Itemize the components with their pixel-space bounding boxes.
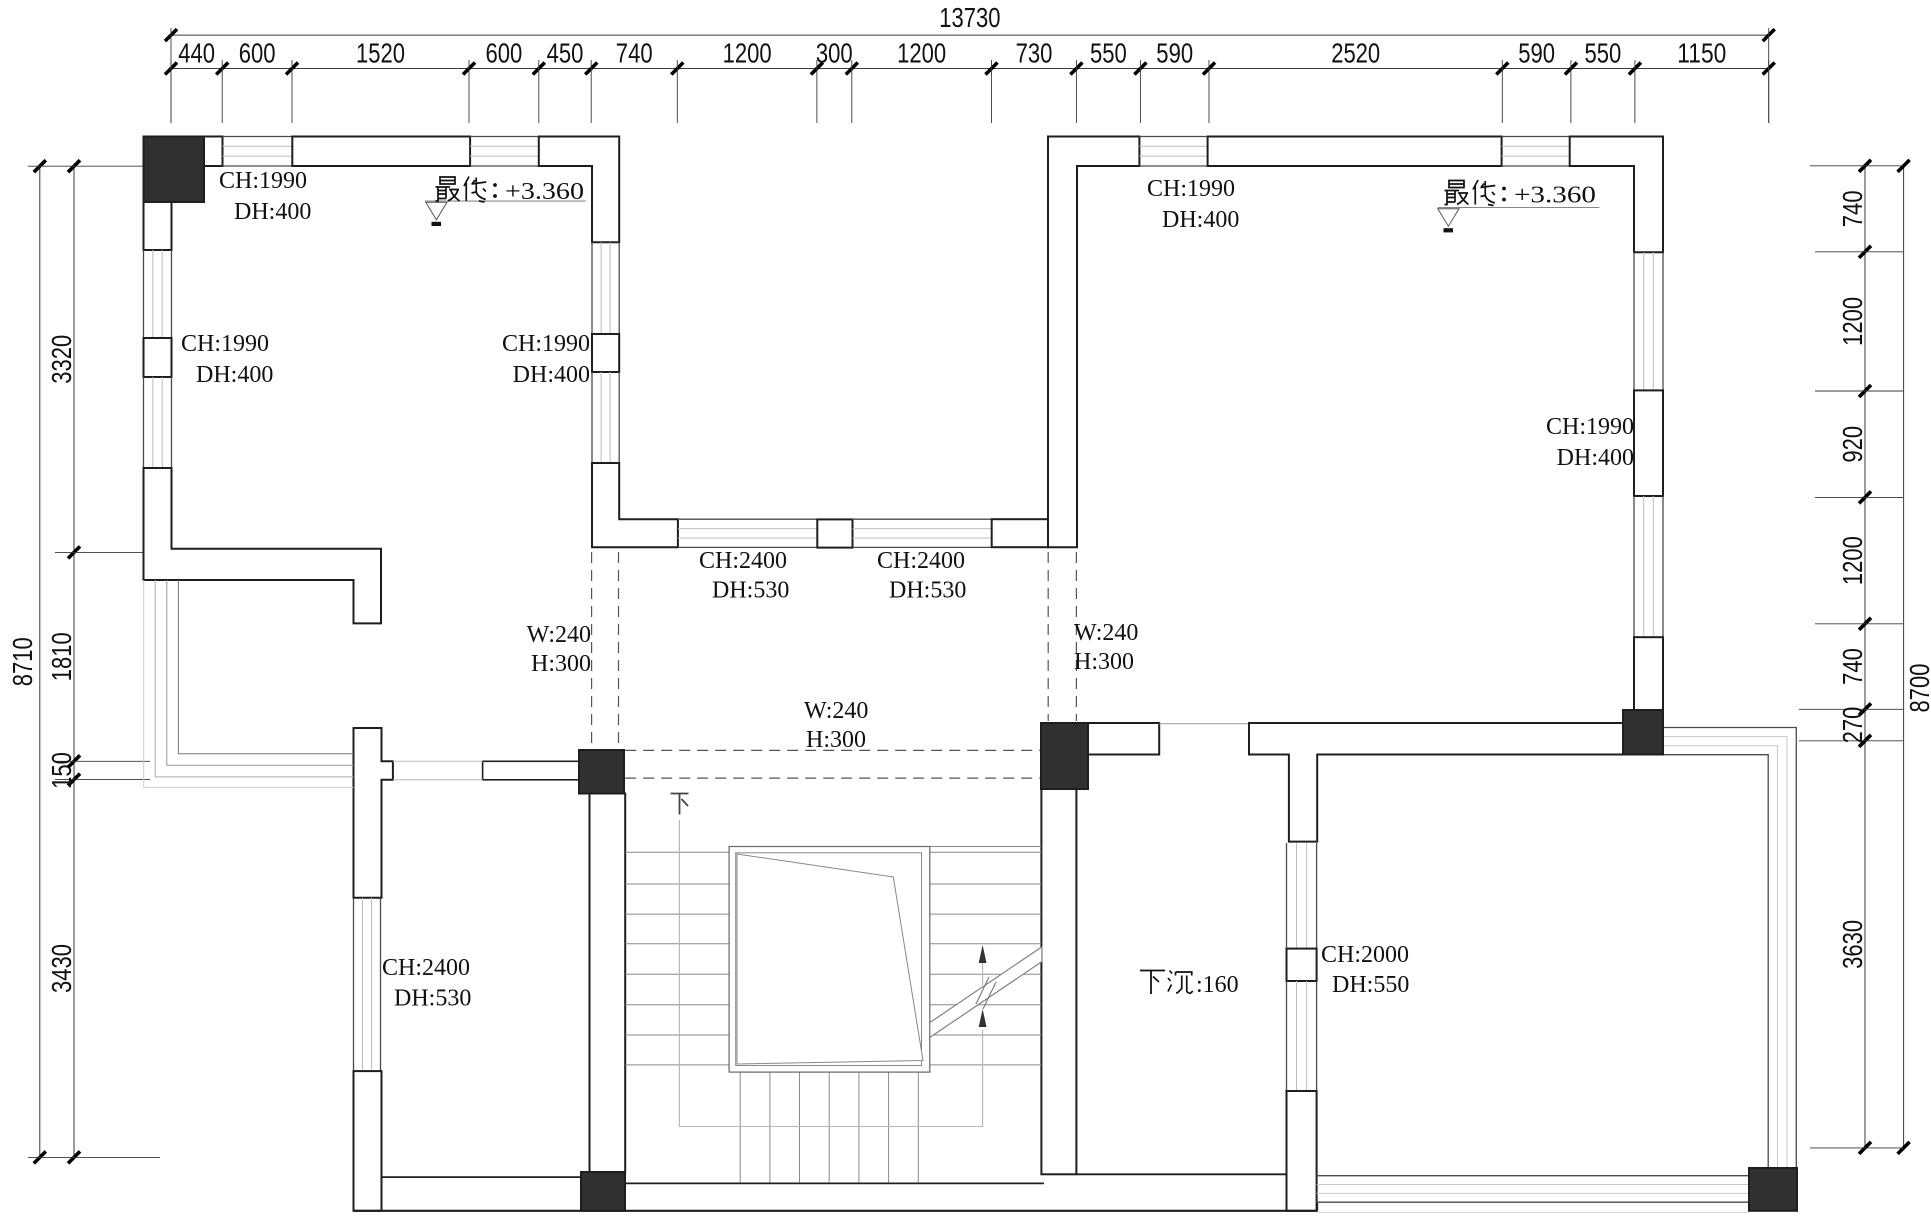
svg-text:600: 600 [486,38,523,69]
svg-text:DH:400: DH:400 [1162,207,1239,233]
svg-text:H:300: H:300 [806,727,866,753]
svg-text:730: 730 [1016,38,1053,69]
svg-text:1200: 1200 [723,38,772,69]
svg-text:H:300: H:300 [531,651,591,677]
svg-text:CH:1990: CH:1990 [1147,176,1235,202]
svg-text:W:240: W:240 [804,698,868,724]
svg-text:1520: 1520 [356,38,405,69]
svg-text:920: 920 [1837,426,1868,463]
svg-text:1810: 1810 [46,632,77,681]
svg-text:1150: 1150 [1677,38,1726,69]
svg-text:3630: 3630 [1837,920,1868,969]
svg-text:1200: 1200 [897,38,946,69]
svg-text:1200: 1200 [1837,536,1868,585]
svg-text:3430: 3430 [46,944,77,993]
svg-text:DH:400: DH:400 [196,362,273,388]
svg-text:CH:1990: CH:1990 [1546,414,1634,440]
svg-text:DH:400: DH:400 [234,199,311,225]
svg-text:150: 150 [46,752,77,789]
svg-text:DH:550: DH:550 [1332,972,1409,998]
svg-text:CH:2400: CH:2400 [699,548,787,574]
svg-text:W:240: W:240 [527,622,591,648]
svg-text:DH:400: DH:400 [1557,445,1634,471]
svg-text:+3.360: +3.360 [505,179,584,205]
svg-text:450: 450 [547,38,584,69]
svg-text:550: 550 [1090,38,1127,69]
svg-text:740: 740 [1837,190,1868,227]
svg-text:DH:530: DH:530 [889,578,966,604]
svg-text:440: 440 [178,38,215,69]
svg-text:13730: 13730 [939,2,1000,33]
svg-text:2520: 2520 [1331,38,1380,69]
svg-text:CH:1990: CH:1990 [219,168,307,194]
svg-text:590: 590 [1518,38,1555,69]
svg-text:H:300: H:300 [1074,649,1134,675]
svg-text:CH:2000: CH:2000 [1321,942,1409,968]
svg-text:8710: 8710 [7,637,38,686]
svg-text:270: 270 [1837,707,1868,744]
svg-text:DH:400: DH:400 [513,362,590,388]
svg-text::160: :160 [1196,972,1239,998]
svg-text:CH:2400: CH:2400 [877,548,965,574]
svg-text:740: 740 [1837,648,1868,685]
svg-text:+3.360: +3.360 [1514,183,1596,209]
svg-text:590: 590 [1156,38,1193,69]
svg-text:CH:1990: CH:1990 [502,331,590,357]
svg-text:740: 740 [616,38,653,69]
svg-text:1200: 1200 [1837,297,1868,346]
svg-text:550: 550 [1585,38,1622,69]
svg-text:W:240: W:240 [1074,620,1138,646]
svg-text:300: 300 [816,38,853,69]
svg-text:3320: 3320 [46,335,77,384]
svg-text:600: 600 [239,38,276,69]
svg-text:CH:2400: CH:2400 [382,955,470,981]
svg-text:DH:530: DH:530 [712,578,789,604]
svg-text:8700: 8700 [1904,664,1931,713]
svg-text:CH:1990: CH:1990 [181,331,269,357]
svg-text:DH:530: DH:530 [394,986,471,1012]
